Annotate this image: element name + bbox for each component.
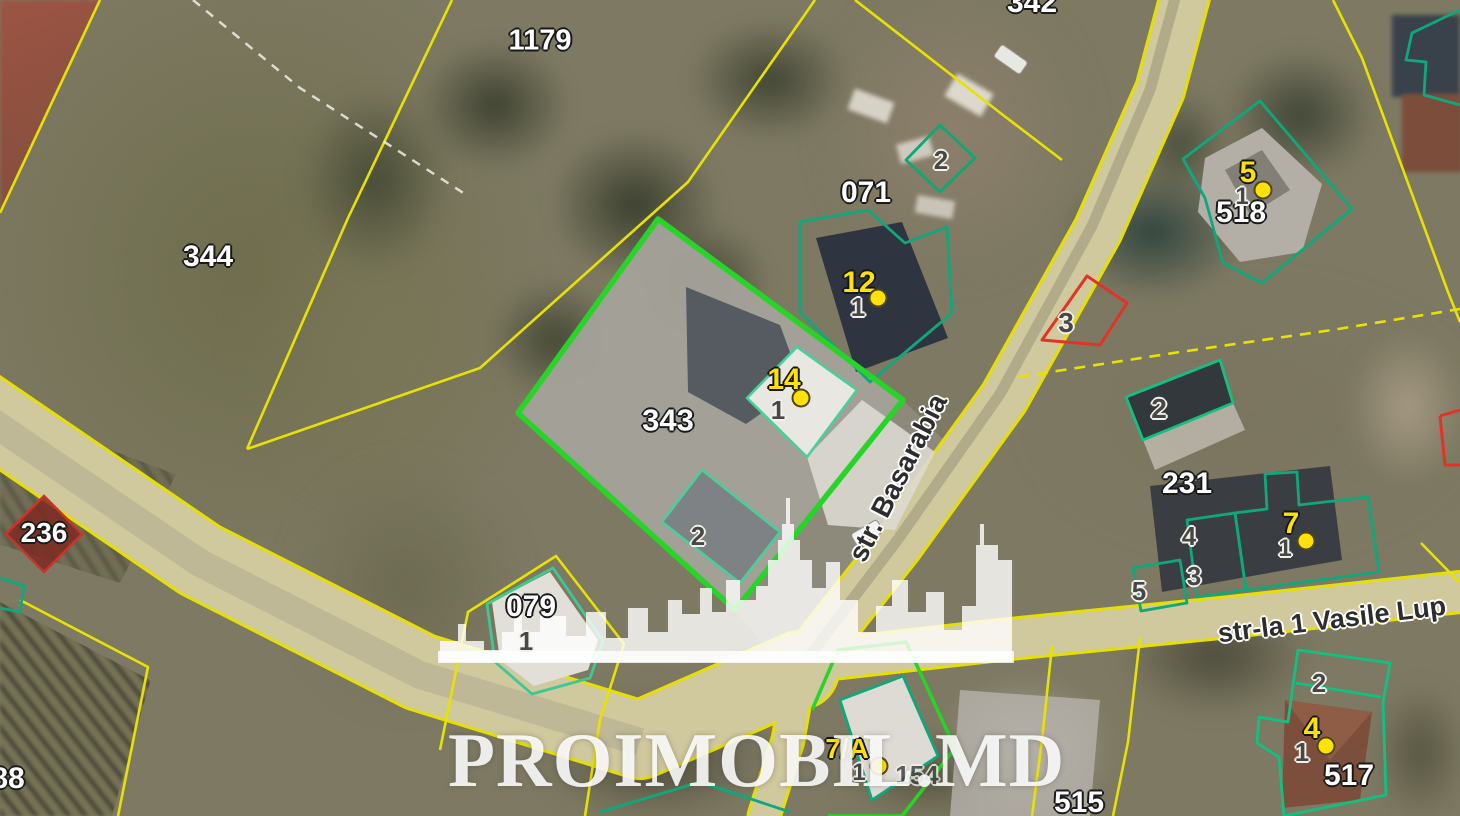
marker-7-dot[interactable]	[1297, 532, 1316, 551]
parcel-outlines-red	[1042, 276, 1460, 465]
sub-label-2-071: 2	[934, 147, 948, 173]
sub-label-1-7: 1	[1278, 537, 1291, 561]
parcel-label-344: 344	[183, 242, 233, 272]
sub-label-1-14: 1	[771, 397, 785, 423]
parcel-517-divider	[1296, 683, 1381, 697]
sub-label-3-231: 3	[1187, 563, 1201, 589]
teal-edge-left	[0, 578, 24, 612]
parcel-label-1179: 1179	[509, 27, 572, 56]
parcel-label-517: 517	[1324, 761, 1374, 791]
sub-label-154: 154	[895, 762, 938, 788]
sub-label-2-343: 2	[691, 523, 705, 549]
marker-5-dot[interactable]	[1254, 181, 1273, 200]
path-dashed-white	[193, 0, 468, 196]
parcel-label-231: 231	[1162, 469, 1212, 499]
sub-label-1-7a: 1	[852, 761, 865, 785]
marker-12-dot[interactable]	[869, 289, 888, 308]
marker-7a-label[interactable]: 7/A	[825, 735, 869, 763]
marker-5-label[interactable]: 5	[1240, 158, 1257, 188]
parcel-label-079: 079	[506, 592, 556, 622]
teal-corner-topright	[1406, 10, 1460, 105]
parcel-label-343: 343	[642, 405, 694, 436]
sub-label-4-231: 4	[1182, 523, 1196, 549]
parcel-label-88: 88	[0, 764, 25, 794]
map-overlay	[0, 0, 1460, 816]
marker-7a-dot[interactable]	[870, 757, 889, 776]
marker-14-dot[interactable]	[792, 389, 811, 408]
sub-label-1-079: 1	[519, 628, 533, 654]
sub-label-3-red: 3	[1058, 309, 1074, 337]
marker-7-label[interactable]: 7	[1283, 509, 1300, 539]
car-white	[993, 44, 1028, 75]
parcel-red-right-edge	[1440, 410, 1460, 465]
map-canvas[interactable]: 1179 344 342 071 343 518 231 079 236 515…	[0, 0, 1460, 816]
parcel-label-342: 342	[1007, 0, 1057, 18]
parcel-label-071: 071	[841, 178, 891, 208]
parcel-label-515: 515	[1054, 788, 1104, 816]
sub-label-2-231: 2	[1151, 395, 1167, 423]
sub-label-5-231: 5	[1132, 578, 1146, 604]
sub-label-2-517: 2	[1312, 670, 1326, 696]
parcel-label-236: 236	[21, 519, 68, 547]
marker-4-dot[interactable]	[1317, 737, 1336, 756]
